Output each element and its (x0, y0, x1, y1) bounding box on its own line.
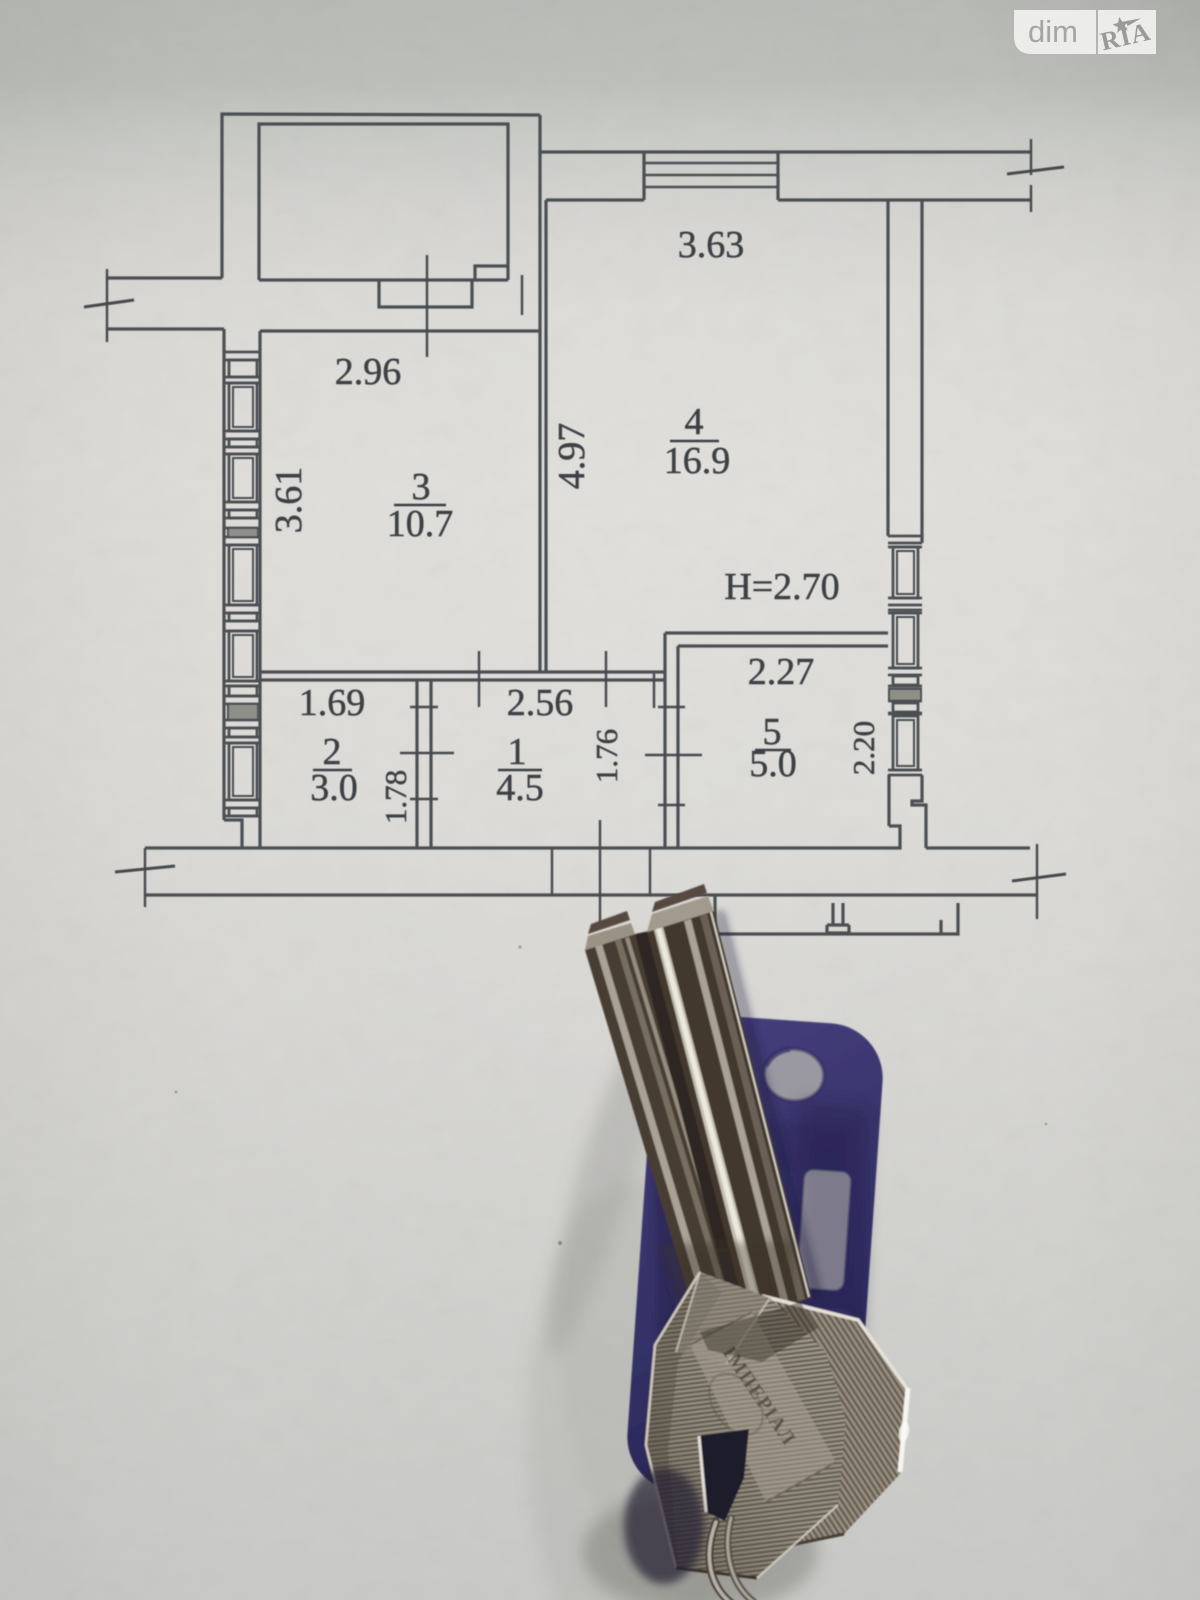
svg-text:3.61: 3.61 (268, 467, 310, 534)
svg-text:dim: dim (1028, 14, 1078, 49)
svg-text:1.76: 1.76 (589, 729, 624, 783)
svg-text:3.63: 3.63 (678, 224, 745, 266)
svg-text:3: 3 (412, 466, 431, 508)
svg-text:1.69: 1.69 (299, 682, 366, 724)
svg-text:3.0: 3.0 (310, 767, 358, 809)
svg-text:H=2.70: H=2.70 (724, 566, 839, 608)
svg-text:2.96: 2.96 (335, 351, 402, 393)
svg-text:2.27: 2.27 (748, 651, 815, 693)
svg-text:16.9: 16.9 (664, 440, 731, 482)
svg-text:2.56: 2.56 (507, 682, 574, 724)
svg-text:1.78: 1.78 (378, 770, 413, 824)
svg-text:10.7: 10.7 (387, 503, 454, 545)
svg-text:4: 4 (685, 401, 704, 443)
svg-text:4.97: 4.97 (551, 423, 593, 490)
svg-text:4.5: 4.5 (496, 767, 544, 809)
svg-text:2.20: 2.20 (846, 721, 881, 775)
